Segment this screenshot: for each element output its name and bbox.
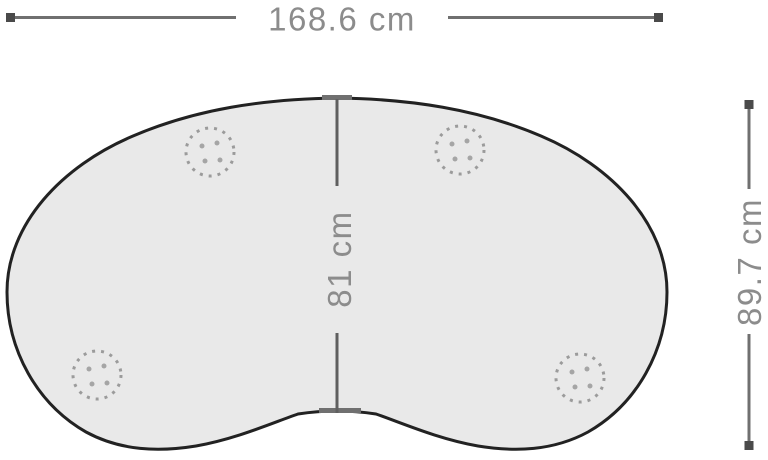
width-dimension-label: 168.6 cm — [268, 1, 416, 38]
right-depth-endcap-bottom — [745, 441, 754, 450]
right-depth-dimension: 89.7 cm — [731, 100, 768, 450]
table-top-diagram: 168.6 cm 81 cm 89.7 cm — [0, 0, 768, 460]
dimension-diagram: 168.6 cm 81 cm 89.7 cm — [0, 0, 768, 460]
right-depth-endcap-top — [745, 100, 754, 109]
width-dimension: 168.6 cm — [6, 1, 663, 38]
right-depth-label: 89.7 cm — [731, 198, 768, 326]
center-depth-label: 81 cm — [321, 210, 358, 307]
width-dimension-endcap-right — [654, 13, 663, 22]
width-dimension-endcap-left — [6, 13, 15, 22]
